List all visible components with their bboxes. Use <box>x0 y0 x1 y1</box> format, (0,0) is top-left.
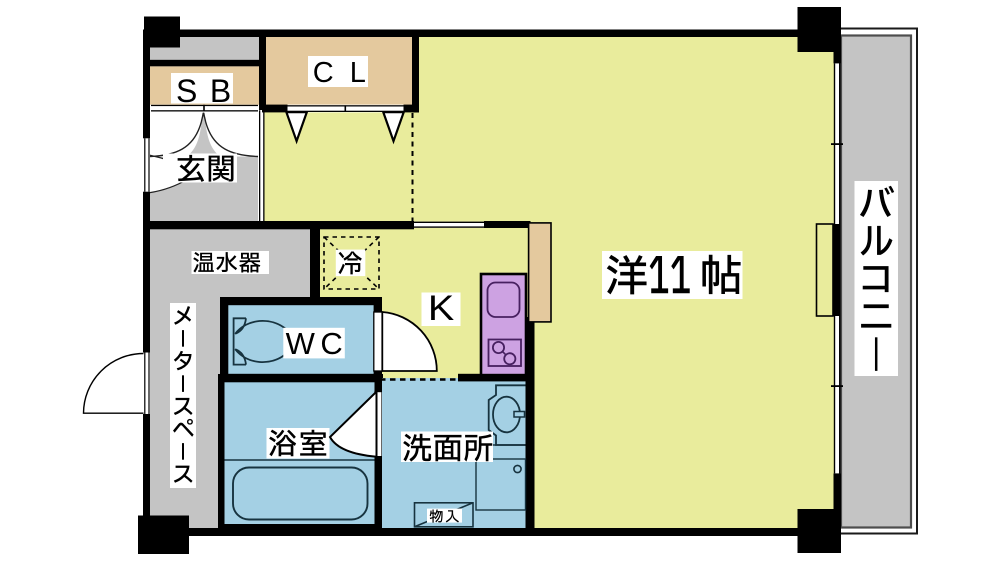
svg-text:WC: WC <box>286 326 349 361</box>
svg-text:CL: CL <box>313 57 382 89</box>
svg-text:SB: SB <box>176 73 244 109</box>
svg-text:K: K <box>428 288 454 327</box>
